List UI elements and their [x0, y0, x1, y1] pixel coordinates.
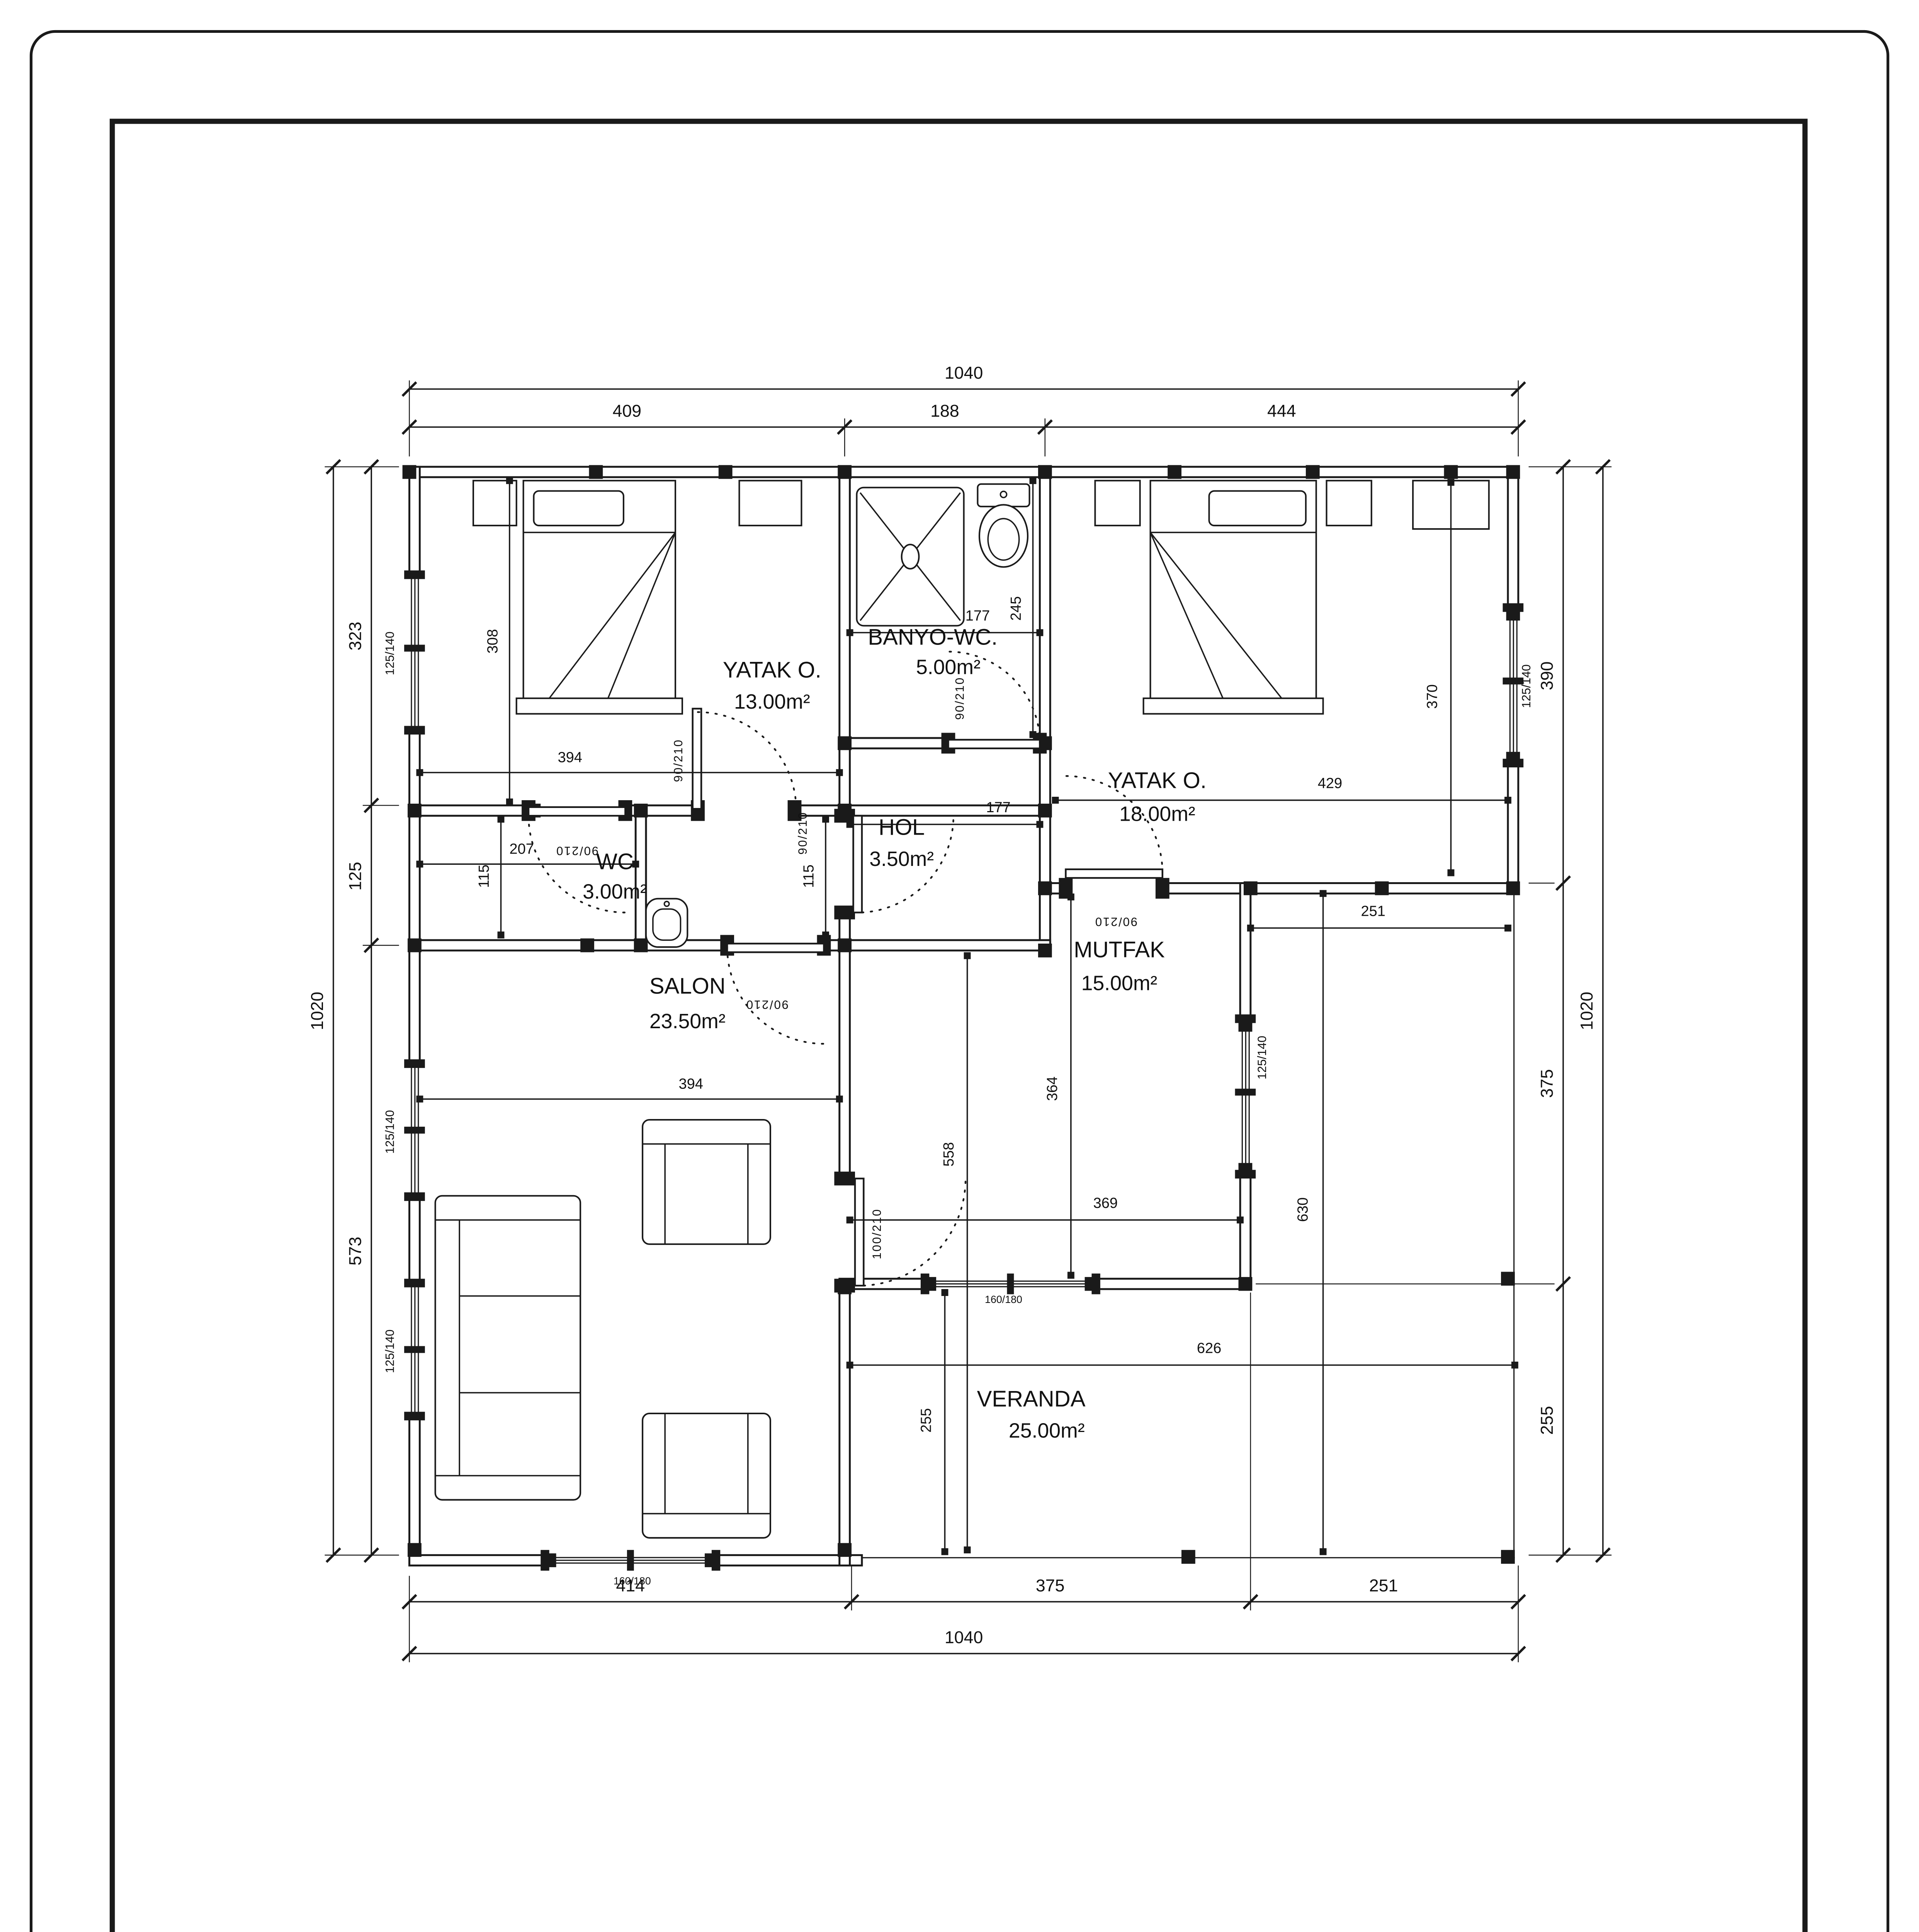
- room-name-wc: WC: [596, 849, 634, 874]
- room-name-salon: SALON: [649, 974, 726, 999]
- door-label: 90/210: [796, 811, 809, 855]
- window-label: 160/180: [985, 1294, 1022, 1305]
- door-label: 90/210: [953, 677, 967, 720]
- shower-tray: [857, 488, 964, 626]
- bed-bedroom1: [517, 481, 682, 714]
- dim-interior: 255: [918, 1408, 935, 1432]
- dim-right-overall: 1020: [1577, 992, 1596, 1030]
- dim-top-188: 188: [930, 401, 959, 420]
- dim-right-255: 255: [1538, 1406, 1557, 1435]
- dim-interior: 370: [1424, 684, 1441, 709]
- bed-bedroom2: [1144, 481, 1323, 714]
- dim-interior: 369: [1093, 1195, 1118, 1211]
- door-label: 90/210: [745, 998, 789, 1012]
- sink-hall: [646, 899, 687, 947]
- room-name-mutfak: MUTFAK: [1074, 937, 1165, 963]
- window-bedroom1-left: 125/140: [383, 570, 425, 735]
- room-name-yatak1: YATAK O.: [723, 657, 821, 682]
- dim-top-overall: 1040: [945, 364, 983, 383]
- dim-interior: 626: [1197, 1340, 1221, 1357]
- dim-bottom-overall: 1040: [945, 1628, 983, 1647]
- veranda-boundary: [862, 893, 1515, 1560]
- dim-left-573: 573: [346, 1237, 365, 1266]
- window-bedroom2-right: 125/140: [1503, 603, 1533, 767]
- room-area-yatak2: 18.00m²: [1119, 803, 1195, 826]
- window-label: 160/180: [614, 1575, 651, 1587]
- toilet-banyo: [977, 484, 1029, 567]
- door-label: 90/210: [671, 739, 685, 782]
- door-label: 90/210: [1094, 915, 1137, 929]
- armchair-top: [642, 1120, 770, 1244]
- room-area-banyo: 5.00m²: [916, 656, 981, 679]
- dresser-bedroom1: [739, 481, 801, 526]
- dim-interior: 177: [986, 799, 1010, 816]
- dim-left-125: 125: [346, 862, 365, 891]
- dim-interior: 177: [965, 608, 990, 624]
- window-salon-bottom: 160/180: [541, 1550, 720, 1587]
- room-area-mutfak: 15.00m²: [1081, 972, 1158, 995]
- dim-interior: 245: [1008, 596, 1024, 621]
- armchair-bottom: [642, 1413, 770, 1538]
- window-mutfak-right: 125/140: [1235, 1014, 1269, 1179]
- door-main-entrance: 100/210: [855, 1179, 965, 1286]
- room-area-hol: 3.50m²: [869, 847, 934, 871]
- dim-interior: 630: [1295, 1197, 1311, 1222]
- floor-plan-sheet: 1040 409 188 444 414 375 251 1040 1020 3…: [0, 0, 1919, 1932]
- room-area-yatak1: 13.00m²: [734, 690, 810, 713]
- dim-interior: 558: [941, 1142, 957, 1167]
- door-bedroom1: 90/210: [671, 709, 796, 811]
- nightstand: [1327, 481, 1372, 526]
- dim-top-409: 409: [613, 401, 642, 420]
- room-name-yatak2: YATAK O.: [1108, 768, 1207, 793]
- room-area-veranda: 25.00m²: [1009, 1419, 1085, 1442]
- dim-bottom-251: 251: [1369, 1577, 1398, 1595]
- room-area-salon: 23.50m²: [649, 1010, 726, 1033]
- dim-interior: 429: [1318, 776, 1342, 792]
- dim-interior: 115: [801, 864, 817, 888]
- window-label: 125/140: [383, 1330, 396, 1373]
- window-salon-left-2: 125/140: [383, 1279, 425, 1420]
- window-label: 125/140: [1520, 664, 1533, 708]
- window-label: 125/140: [383, 1110, 396, 1154]
- room-name-veranda: VERANDA: [977, 1386, 1086, 1412]
- room-area-wc: 3.00m²: [583, 880, 647, 903]
- dim-right-390: 390: [1538, 662, 1557, 690]
- room-name-hol: HOL: [879, 815, 925, 840]
- door-label: 100/210: [870, 1208, 884, 1259]
- dim-interior: 251: [1361, 903, 1385, 919]
- dim-bottom-375: 375: [1036, 1577, 1065, 1595]
- window-label: 125/140: [1255, 1036, 1269, 1080]
- window-label: 125/140: [383, 631, 396, 675]
- dim-interior: 394: [679, 1076, 703, 1092]
- nightstand: [1095, 481, 1140, 526]
- inner-frame: [112, 121, 1805, 1932]
- dim-right-375: 375: [1538, 1069, 1557, 1098]
- dim-left-323: 323: [346, 622, 365, 651]
- dim-left-overall: 1020: [308, 992, 327, 1030]
- sofa: [435, 1196, 581, 1500]
- dim-top-444: 444: [1267, 401, 1296, 420]
- dim-interior: 308: [485, 629, 501, 653]
- window-salon-left-1: 125/140: [383, 1060, 425, 1201]
- door-label: 90/210: [555, 844, 598, 858]
- dim-interior: 115: [476, 864, 492, 888]
- dim-interior: 394: [558, 750, 582, 766]
- room-name-banyo: BANYO-WC.: [868, 625, 998, 650]
- dim-interior: 207: [509, 841, 534, 857]
- door-bedroom2: 90/210: [1066, 776, 1162, 929]
- dim-interior: 364: [1044, 1077, 1061, 1101]
- door-salon: 90/210: [727, 944, 824, 1044]
